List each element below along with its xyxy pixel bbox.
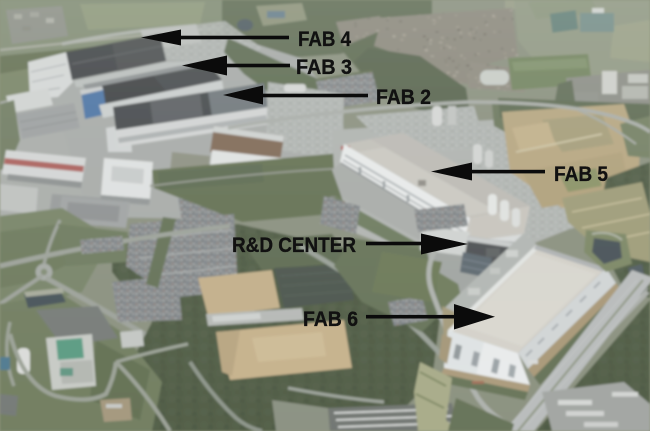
svg-text:FAB 4: FAB 4 xyxy=(298,28,351,51)
svg-text:FAB 5: FAB 5 xyxy=(554,163,608,186)
svg-text:FAB 3: FAB 3 xyxy=(296,56,352,79)
svg-text:FAB 2: FAB 2 xyxy=(376,86,431,109)
svg-text:R&D CENTER: R&D CENTER xyxy=(232,234,356,257)
svg-text:FAB 6: FAB 6 xyxy=(303,308,358,331)
